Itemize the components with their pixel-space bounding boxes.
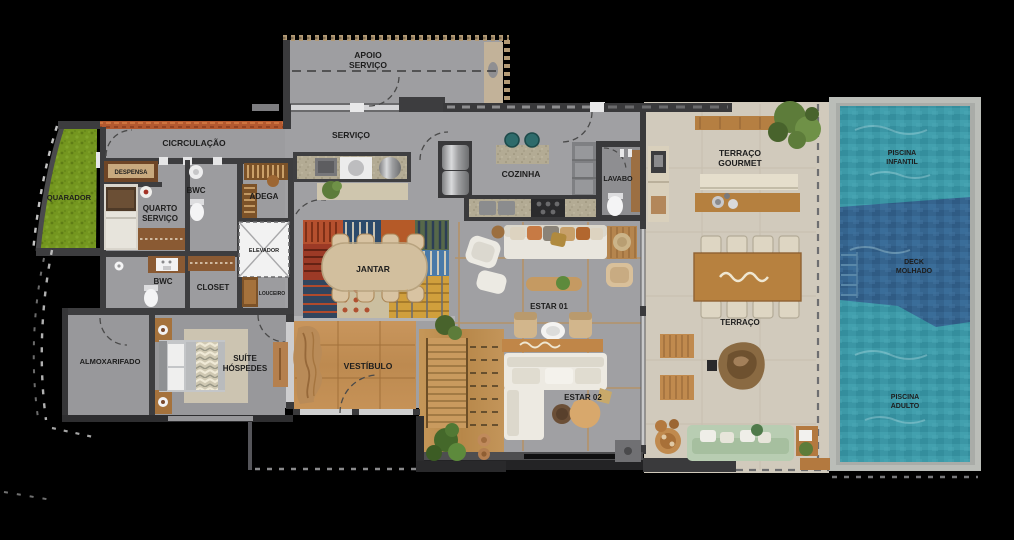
svg-text:DECK: DECK [904,259,924,266]
svg-text:DESPENSA: DESPENSA [114,170,148,176]
svg-text:CICRCULAÇÃO: CICRCULAÇÃO [162,138,226,148]
svg-text:QUARTO: QUARTO [143,204,178,213]
svg-text:ESTAR 02: ESTAR 02 [564,393,602,402]
svg-text:LAVABO: LAVABO [603,174,633,183]
svg-text:SERVIÇO: SERVIÇO [142,214,178,223]
svg-text:SERVIÇO: SERVIÇO [332,130,370,140]
svg-text:BWC: BWC [153,277,172,286]
svg-text:TERRAÇO: TERRAÇO [720,318,760,327]
svg-text:BWC: BWC [186,186,205,195]
svg-text:ESTAR 01: ESTAR 01 [530,302,568,311]
svg-text:VESTÍBULO: VESTÍBULO [344,361,393,371]
svg-text:MOLHADO: MOLHADO [896,268,933,275]
svg-text:PISCINA: PISCINA [891,394,919,401]
svg-text:COZINHA: COZINHA [502,169,541,179]
svg-text:LOUCEIRO: LOUCEIRO [259,291,286,297]
svg-text:PISCINA: PISCINA [888,150,916,157]
svg-text:QUARADOR: QUARADOR [47,193,92,202]
svg-text:SERVIÇO: SERVIÇO [349,60,387,70]
svg-text:APOIO: APOIO [354,50,382,60]
svg-text:GOURMET: GOURMET [718,158,762,168]
svg-text:ALMOXARIFADO: ALMOXARIFADO [80,357,141,366]
svg-text:ADULTO: ADULTO [891,403,920,410]
svg-text:ELEVADOR: ELEVADOR [249,248,279,254]
svg-text:HÓSPEDES: HÓSPEDES [223,364,268,373]
svg-text:SUÍTE: SUÍTE [233,354,257,363]
svg-text:ADEGA: ADEGA [250,192,279,201]
svg-text:INFANTIL: INFANTIL [886,159,918,166]
svg-text:TERRAÇO: TERRAÇO [719,148,761,158]
svg-text:JANTAR: JANTAR [356,264,390,274]
svg-text:CLOSET: CLOSET [197,283,230,292]
